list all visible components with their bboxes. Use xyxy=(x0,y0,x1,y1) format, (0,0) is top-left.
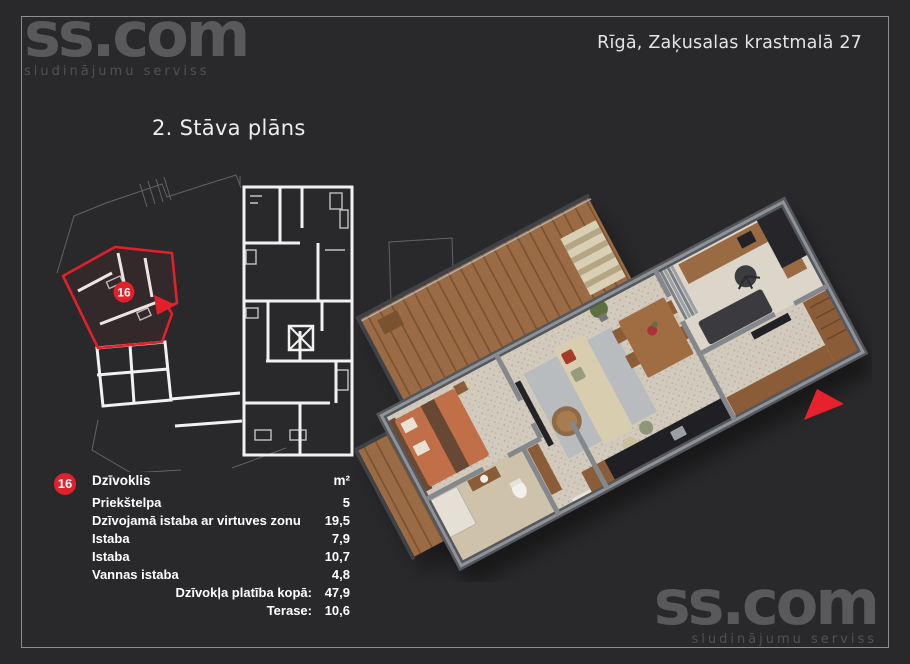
property-address: Rīgā, Zaķusalas krastmalā 27 xyxy=(597,33,862,53)
unit-16-highlight: 16 xyxy=(63,247,177,348)
room-area: 4,8 xyxy=(312,566,350,584)
table-row: Priekštelpa 5 xyxy=(92,494,350,512)
ss-com-logo-text: ss.com xyxy=(24,8,247,62)
room-area: 19,5 xyxy=(312,512,350,530)
advert-poster: ss.com sludinājumu serviss Rīgā, Zaķusal… xyxy=(0,0,910,664)
ss-com-logo-footer: ss.com sludinājumu serviss xyxy=(654,576,877,646)
room-label: Priekštelpa xyxy=(92,494,312,512)
table-row: Istaba 10,7 xyxy=(92,548,350,566)
area-table: Dzīvoklis m² Priekštelpa 5 Dzīvojamā ist… xyxy=(92,472,350,620)
svg-text:16: 16 xyxy=(117,286,131,300)
total-label: Dzīvokļa platība kopā: xyxy=(92,584,312,602)
table-row: Vannas istaba 4,8 xyxy=(92,566,350,584)
room-area: 7,9 xyxy=(312,530,350,548)
total-area: 10,6 xyxy=(312,602,350,620)
ss-com-logo: ss.com sludinājumu serviss xyxy=(24,8,247,78)
room-label: Vannas istaba xyxy=(92,566,312,584)
floor-plan-title: 2. Stāva plāns xyxy=(152,116,306,140)
unit-16-badge: 16 xyxy=(114,282,135,303)
room-area: 5 xyxy=(312,494,350,512)
room-area: 10,7 xyxy=(312,548,350,566)
table-header-row: Dzīvoklis m² xyxy=(92,472,350,490)
total-label: Terase: xyxy=(92,602,312,620)
unit-number-badge: 16 xyxy=(54,473,76,495)
table-header-label: Dzīvoklis xyxy=(92,472,312,490)
total-area: 47,9 xyxy=(312,584,350,602)
ss-com-logo-text: ss.com xyxy=(654,576,877,630)
room-label: Istaba xyxy=(92,548,312,566)
room-label: Dzīvojamā istaba ar virtuves zonu xyxy=(92,512,312,530)
table-row: Istaba 7,9 xyxy=(92,530,350,548)
table-total-row: Dzīvokļa platība kopā: 47,9 xyxy=(92,584,350,602)
table-row: Dzīvojamā istaba ar virtuves zonu 19,5 xyxy=(92,512,350,530)
table-total-row: Terase: 10,6 xyxy=(92,602,350,620)
apartment-3d-render xyxy=(338,158,872,582)
table-header-unit: m² xyxy=(312,472,350,490)
room-label: Istaba xyxy=(92,530,312,548)
